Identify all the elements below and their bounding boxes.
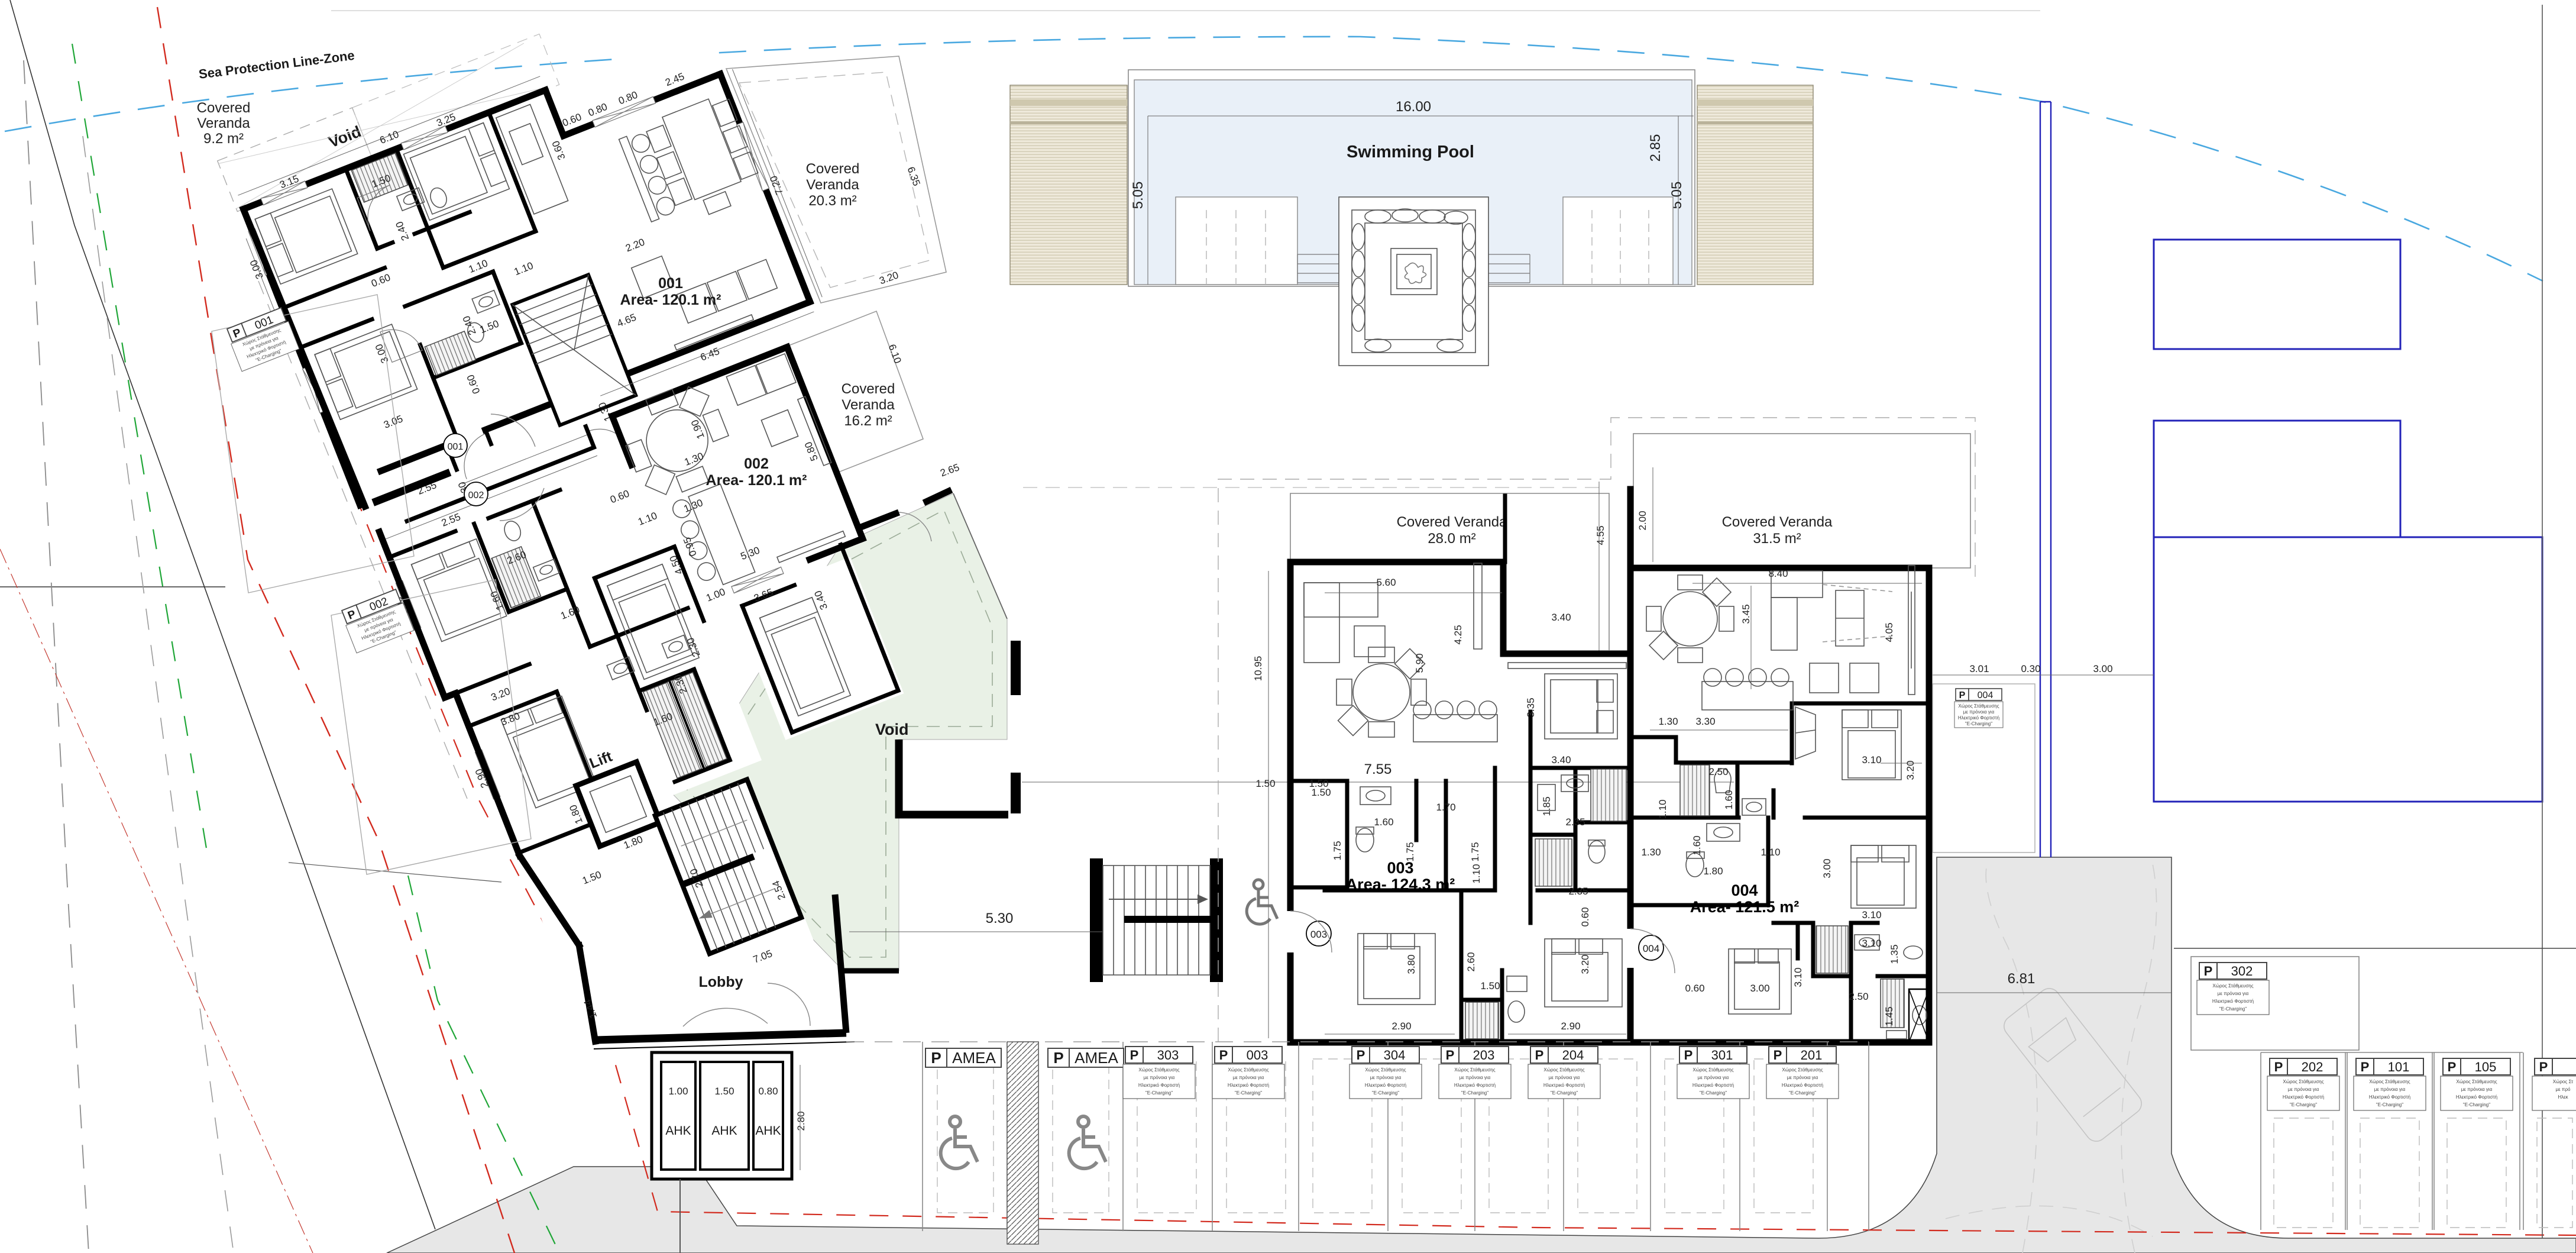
svg-text:1.35: 1.35 bbox=[1889, 944, 1900, 964]
svg-text:3.10: 3.10 bbox=[1862, 938, 1881, 949]
svg-text:"E-Charging": "E-Charging" bbox=[1372, 1090, 1399, 1096]
svg-text:"E-Charging": "E-Charging" bbox=[1789, 1090, 1816, 1096]
svg-text:1.75: 1.75 bbox=[1470, 842, 1481, 861]
svg-text:Χώρος Στάθμευσης: Χώρος Στάθμευσης bbox=[1692, 1067, 1733, 1073]
svg-text:2.00: 2.00 bbox=[1637, 511, 1648, 530]
svg-text:με πρόνοια για: με πρόνοια για bbox=[2288, 1087, 2319, 1092]
svg-text:304: 304 bbox=[1384, 1048, 1406, 1063]
svg-text:P: P bbox=[1959, 690, 1966, 700]
svg-text:P: P bbox=[2361, 1060, 2370, 1074]
svg-text:16.2 m²: 16.2 m² bbox=[844, 413, 892, 429]
svg-text:1.60: 1.60 bbox=[1374, 816, 1393, 828]
svg-text:9.2 m²: 9.2 m² bbox=[203, 131, 244, 147]
svg-text:1.45: 1.45 bbox=[1884, 1006, 1895, 1026]
svg-text:4.55: 4.55 bbox=[1595, 525, 1606, 545]
svg-text:5.90: 5.90 bbox=[1414, 653, 1425, 673]
svg-text:2.60: 2.60 bbox=[1465, 952, 1477, 971]
svg-text:Area- 121.5 m²: Area- 121.5 m² bbox=[1690, 898, 1800, 916]
svg-text:3.00: 3.00 bbox=[1821, 858, 1833, 878]
svg-text:με πρόνοια για: με πρόνοια για bbox=[1698, 1075, 1729, 1080]
svg-text:5.60: 5.60 bbox=[1376, 577, 1396, 588]
svg-text:1.85: 1.85 bbox=[1541, 796, 1552, 816]
svg-text:004: 004 bbox=[1643, 943, 1659, 954]
svg-text:Χώρος Στάθμευσης: Χώρος Στάθμευσης bbox=[1958, 703, 1999, 709]
svg-text:2.50: 2.50 bbox=[1849, 991, 1868, 1002]
svg-text:2.50: 2.50 bbox=[1708, 766, 1728, 777]
svg-text:002: 002 bbox=[744, 456, 769, 472]
svg-text:1.50: 1.50 bbox=[1309, 778, 1328, 789]
svg-text:1.75: 1.75 bbox=[1332, 841, 1343, 860]
svg-text:Ηλεκτρικό Φορτιστή: Ηλεκτρικό Φορτιστή bbox=[1365, 1083, 1406, 1088]
svg-text:Χώρος Στ: Χώρος Στ bbox=[2553, 1079, 2574, 1084]
svg-text:003: 003 bbox=[1247, 1048, 1268, 1063]
svg-text:Area- 124.3 m²: Area- 124.3 m² bbox=[1346, 876, 1455, 893]
svg-text:AMEA: AMEA bbox=[952, 1049, 996, 1067]
svg-text:με πρόνοια για: με πρόνοια για bbox=[1963, 709, 1995, 715]
svg-text:με πρόνοια για: με πρόνοια για bbox=[1233, 1075, 1264, 1080]
svg-text:P: P bbox=[1053, 1049, 1063, 1067]
svg-text:"E-Charging": "E-Charging" bbox=[2463, 1102, 2490, 1107]
svg-text:Ηλεκτρικό Φορτιστή: Ηλεκτρικό Φορτιστή bbox=[1692, 1083, 1734, 1088]
svg-text:201: 201 bbox=[1801, 1048, 1823, 1063]
svg-text:Covered: Covered bbox=[842, 381, 895, 397]
svg-text:3.01: 3.01 bbox=[1969, 663, 1989, 674]
svg-text:Χώρος Στάθμευσης: Χώρος Στάθμευσης bbox=[2369, 1079, 2410, 1084]
svg-text:Ηλεκτρικό Φορτιστή: Ηλεκτρικό Φορτιστή bbox=[2283, 1094, 2324, 1100]
svg-text:Area- 120.1 m²: Area- 120.1 m² bbox=[620, 292, 721, 308]
svg-text:1.60: 1.60 bbox=[1723, 790, 1734, 809]
svg-text:2.85: 2.85 bbox=[1648, 134, 1664, 162]
svg-text:6.81: 6.81 bbox=[2008, 971, 2035, 987]
svg-text:P: P bbox=[1219, 1048, 1228, 1063]
svg-text:Covered Veranda: Covered Veranda bbox=[1722, 514, 1833, 530]
svg-text:Ηλεκτρικό Φορτιστή: Ηλεκτρικό Φορτιστή bbox=[2456, 1094, 2497, 1100]
svg-text:Χώρος Στάθμευσης: Χώρος Στάθμευσης bbox=[1543, 1067, 1584, 1073]
svg-text:4.25: 4.25 bbox=[1452, 625, 1464, 644]
svg-text:3.40: 3.40 bbox=[1551, 754, 1571, 766]
svg-text:Χώρος Στάθμευσης: Χώρος Στάθμευσης bbox=[1228, 1067, 1268, 1073]
svg-text:20.3 m²: 20.3 m² bbox=[808, 193, 856, 209]
svg-text:2.35: 2.35 bbox=[1565, 816, 1585, 828]
svg-text:3.20: 3.20 bbox=[1905, 760, 1916, 780]
svg-text:"E-Charging": "E-Charging" bbox=[1551, 1090, 1578, 1096]
svg-text:2.90: 2.90 bbox=[1391, 1021, 1411, 1032]
svg-text:3.10: 3.10 bbox=[1862, 909, 1881, 921]
svg-text:16.00: 16.00 bbox=[1396, 99, 1431, 115]
svg-text:0.60: 0.60 bbox=[1685, 983, 1704, 994]
svg-text:1.50: 1.50 bbox=[714, 1086, 734, 1097]
svg-text:Ηλεκ: Ηλεκ bbox=[2558, 1094, 2568, 1100]
svg-text:με πρόνοια για: με πρόνοια για bbox=[1549, 1075, 1580, 1080]
svg-text:P: P bbox=[1684, 1048, 1693, 1063]
svg-text:Veranda: Veranda bbox=[842, 397, 895, 413]
svg-text:Area- 120.1 m²: Area- 120.1 m² bbox=[706, 472, 807, 489]
svg-text:1.10: 1.10 bbox=[1657, 799, 1668, 819]
svg-text:0.60: 0.60 bbox=[1580, 907, 1591, 926]
svg-text:3.40: 3.40 bbox=[1551, 612, 1571, 623]
svg-text:003: 003 bbox=[1310, 929, 1327, 940]
svg-text:3.20: 3.20 bbox=[1580, 954, 1591, 974]
svg-text:P: P bbox=[1535, 1048, 1544, 1063]
svg-text:1.10: 1.10 bbox=[1471, 864, 1482, 883]
svg-text:με πρόνοια για: με πρόνοια για bbox=[1787, 1075, 1818, 1080]
svg-text:3.10: 3.10 bbox=[1792, 967, 1804, 987]
svg-text:με πρόνοια για: με πρόνοια για bbox=[1144, 1075, 1175, 1080]
svg-text:Void: Void bbox=[875, 721, 909, 738]
svg-text:με πρόνοια για: με πρόνοια για bbox=[1370, 1075, 1402, 1080]
svg-text:0.80: 0.80 bbox=[758, 1086, 778, 1097]
svg-text:"E-Charging": "E-Charging" bbox=[1235, 1090, 1262, 1096]
svg-text:001: 001 bbox=[658, 275, 683, 292]
svg-text:"E-Charging": "E-Charging" bbox=[1461, 1090, 1488, 1096]
svg-text:"E-Charging": "E-Charging" bbox=[2290, 1102, 2317, 1107]
svg-text:31.5 m²: 31.5 m² bbox=[1753, 531, 1801, 547]
svg-text:Veranda: Veranda bbox=[806, 177, 859, 193]
svg-text:204: 204 bbox=[1562, 1048, 1584, 1063]
svg-text:AMEA: AMEA bbox=[1075, 1049, 1118, 1067]
svg-text:001: 001 bbox=[448, 442, 464, 452]
svg-text:202: 202 bbox=[2302, 1060, 2323, 1074]
svg-text:1.70: 1.70 bbox=[1436, 802, 1455, 813]
svg-text:P: P bbox=[1130, 1048, 1139, 1063]
svg-text:P: P bbox=[1357, 1048, 1365, 1063]
svg-text:1.50: 1.50 bbox=[1480, 980, 1500, 992]
svg-text:28.0 m²: 28.0 m² bbox=[1428, 531, 1475, 547]
svg-text:P: P bbox=[2448, 1060, 2457, 1074]
svg-text:1.30: 1.30 bbox=[1658, 716, 1678, 727]
svg-text:5.05: 5.05 bbox=[1130, 182, 1146, 209]
svg-text:Ηλεκτρικό Φορτιστή: Ηλεκτρικό Φορτιστή bbox=[1138, 1083, 1180, 1088]
svg-text:με πρό: με πρό bbox=[2556, 1087, 2571, 1092]
svg-text:4.05: 4.05 bbox=[1884, 622, 1895, 642]
svg-text:Covered: Covered bbox=[197, 100, 251, 116]
svg-text:Χώρος Στάθμευσης: Χώρος Στάθμευσης bbox=[2283, 1079, 2323, 1084]
svg-text:1.80: 1.80 bbox=[1703, 866, 1723, 877]
svg-text:"E-Charging": "E-Charging" bbox=[1965, 721, 1992, 726]
svg-text:Χώρος Στάθμευσης: Χώρος Στάθμευσης bbox=[2456, 1079, 2497, 1084]
svg-text:1.30: 1.30 bbox=[1641, 847, 1661, 858]
svg-text:303: 303 bbox=[1157, 1048, 1179, 1063]
svg-text:P: P bbox=[2539, 1060, 2548, 1074]
svg-text:3.30: 3.30 bbox=[1695, 716, 1715, 727]
svg-text:"E-Charging": "E-Charging" bbox=[2219, 1006, 2247, 1012]
svg-text:με πρόνοια για: με πρόνοια για bbox=[1459, 1075, 1491, 1080]
svg-text:"E-Charging": "E-Charging" bbox=[1700, 1090, 1727, 1096]
svg-text:3.35: 3.35 bbox=[1525, 697, 1536, 717]
svg-text:Covered: Covered bbox=[806, 161, 860, 177]
svg-text:Ηλεκτρικό Φορτιστή: Ηλεκτρικό Φορτιστή bbox=[1958, 715, 1999, 721]
svg-text:3.00: 3.00 bbox=[1750, 983, 1769, 994]
svg-text:Veranda: Veranda bbox=[197, 115, 250, 131]
svg-text:203: 203 bbox=[1473, 1048, 1495, 1063]
svg-text:Χώρος Στάθμευσης: Χώρος Στάθμευσης bbox=[1454, 1067, 1495, 1073]
svg-text:Ηλεκτρικό Φορτιστή: Ηλεκτρικό Φορτιστή bbox=[1782, 1083, 1823, 1088]
svg-text:2.35: 2.35 bbox=[1568, 886, 1588, 897]
svg-text:Lobby: Lobby bbox=[699, 974, 743, 990]
svg-text:Ηλεκτρικό Φορτιστή: Ηλεκτρικό Φορτιστή bbox=[1454, 1083, 1496, 1088]
svg-text:με πρόνοια για: με πρόνοια για bbox=[2374, 1087, 2406, 1092]
svg-text:8.40: 8.40 bbox=[1768, 568, 1788, 579]
svg-text:302: 302 bbox=[2231, 964, 2253, 978]
svg-text:P: P bbox=[1446, 1048, 1455, 1063]
svg-text:AHK: AHK bbox=[665, 1124, 691, 1138]
svg-text:P: P bbox=[931, 1049, 941, 1067]
svg-text:"E-Charging": "E-Charging" bbox=[1145, 1090, 1173, 1096]
svg-text:004: 004 bbox=[1978, 690, 1994, 700]
svg-text:3.80: 3.80 bbox=[1406, 954, 1417, 974]
svg-text:1.50: 1.50 bbox=[1255, 778, 1275, 789]
svg-text:5.30: 5.30 bbox=[986, 910, 1014, 926]
svg-text:Χώρος Στάθμευσης: Χώρος Στάθμευσης bbox=[1138, 1067, 1179, 1073]
svg-text:AHK: AHK bbox=[711, 1124, 737, 1138]
svg-text:Χώρος Στάθμευσης: Χώρος Στάθμευσης bbox=[1782, 1067, 1823, 1073]
svg-text:2.80: 2.80 bbox=[795, 1111, 807, 1131]
svg-text:με πρόνοια για: με πρόνοια για bbox=[2218, 991, 2249, 996]
svg-text:"E-Charging": "E-Charging" bbox=[2376, 1102, 2403, 1107]
svg-text:3.00: 3.00 bbox=[2093, 663, 2112, 674]
svg-text:105: 105 bbox=[2475, 1060, 2497, 1074]
svg-text:P: P bbox=[1774, 1048, 1782, 1063]
svg-text:1.60: 1.60 bbox=[1691, 835, 1703, 855]
svg-text:P: P bbox=[2274, 1060, 2283, 1074]
svg-text:Swimming Pool: Swimming Pool bbox=[1347, 143, 1474, 162]
svg-text:1.00: 1.00 bbox=[668, 1086, 688, 1097]
svg-text:Ηλεκτρικό Φορτιστή: Ηλεκτρικό Φορτιστή bbox=[2212, 999, 2254, 1004]
svg-text:3.45: 3.45 bbox=[1740, 604, 1752, 624]
svg-text:Ηλεκτρικό Φορτιστή: Ηλεκτρικό Φορτιστή bbox=[1543, 1083, 1585, 1088]
svg-text:1.75: 1.75 bbox=[1404, 842, 1416, 861]
svg-text:0.30: 0.30 bbox=[2021, 663, 2040, 674]
svg-text:10.95: 10.95 bbox=[1253, 656, 1264, 682]
svg-text:7.55: 7.55 bbox=[1364, 761, 1392, 777]
svg-text:Χώρος Στάθμευσης: Χώρος Στάθμευσης bbox=[1365, 1067, 1406, 1073]
svg-text:2.90: 2.90 bbox=[1561, 1021, 1580, 1032]
svg-text:P: P bbox=[2204, 964, 2213, 978]
svg-text:1.10: 1.10 bbox=[1761, 847, 1780, 858]
svg-text:Χώρος Στάθμευσης: Χώρος Στάθμευσης bbox=[2212, 983, 2253, 989]
svg-text:Ηλεκτρικό Φορτιστή: Ηλεκτρικό Φορτιστή bbox=[2369, 1094, 2410, 1100]
svg-text:002: 002 bbox=[468, 490, 484, 500]
svg-text:με πρόνοια για: με πρόνοια για bbox=[2461, 1087, 2493, 1092]
svg-text:101: 101 bbox=[2388, 1060, 2410, 1074]
svg-text:004: 004 bbox=[1731, 881, 1758, 899]
svg-text:AHK: AHK bbox=[755, 1124, 781, 1138]
svg-text:301: 301 bbox=[1711, 1048, 1733, 1063]
svg-text:Ηλεκτρικό Φορτιστή: Ηλεκτρικό Φορτιστή bbox=[1228, 1083, 1269, 1088]
svg-text:Covered Veranda: Covered Veranda bbox=[1397, 514, 1507, 530]
svg-text:3.10: 3.10 bbox=[1862, 754, 1881, 766]
